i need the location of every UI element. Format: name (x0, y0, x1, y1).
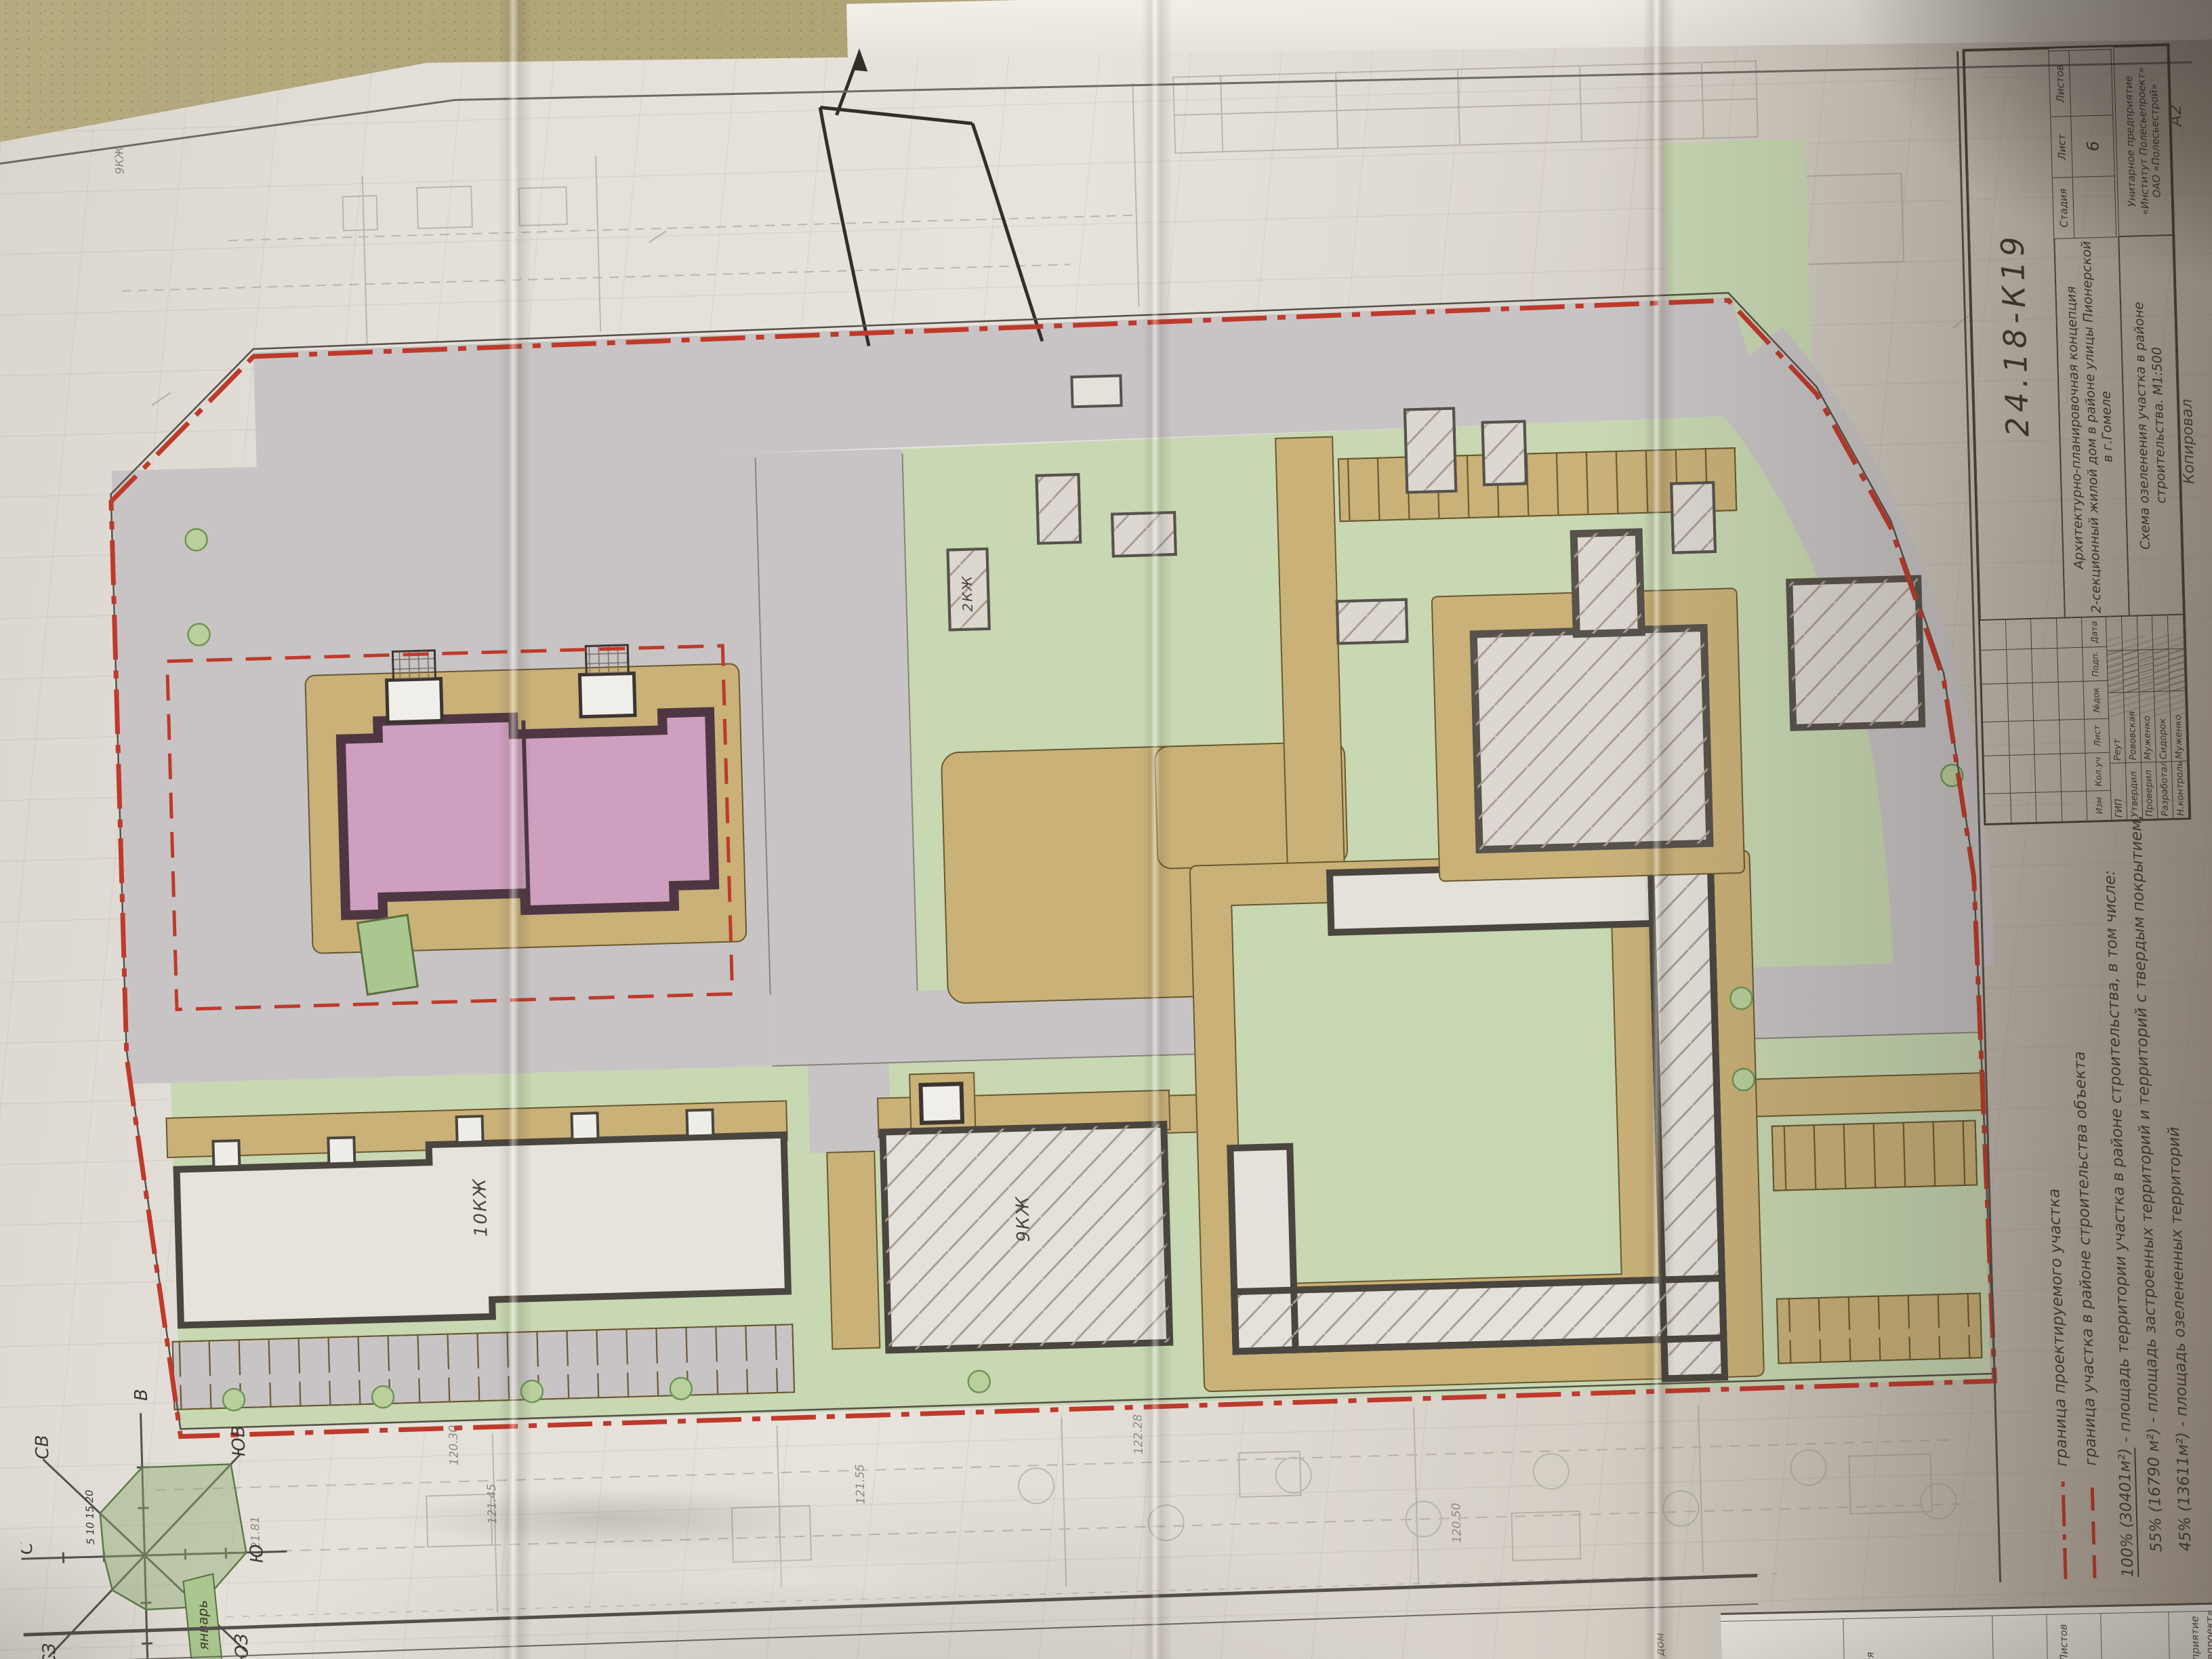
sheets-label: Листов (2049, 50, 2072, 117)
svg-text:120.30: 120.30 (447, 1425, 462, 1466)
document-number: 24.18-К19 (1964, 49, 2064, 620)
svg-text:ЮВ: ЮВ (228, 1425, 249, 1457)
sig-role: Проверил (2141, 762, 2158, 819)
svg-text:5 10 15 20: 5 10 15 20 (83, 1490, 97, 1545)
underlying-cell-text: Листов (2057, 1624, 2070, 1659)
margin-format: А2 (2165, 104, 2186, 127)
pencil-note: дом (1654, 1633, 1667, 1656)
access-road (819, 49, 1042, 348)
project-title: Архитектурно-планировочная концепция 2-с… (2054, 237, 2129, 617)
svg-text:январь: январь (194, 1600, 211, 1650)
svg-text:Ю: Ю (247, 1544, 268, 1563)
svg-text:СЗ: СЗ (39, 1643, 60, 1659)
svg-text:121.45: 121.45 (485, 1483, 500, 1524)
sig-role: ГИП (2110, 762, 2127, 820)
stage-value (2073, 176, 2116, 238)
sheet-label: Лист (2051, 116, 2073, 178)
organization-name: Унитарное предприятие «Институт Полесьеп… (2113, 45, 2173, 237)
photo-of-site-plan: 9КЖ 120.30 121.45 121.81 122.28 121.55 1… (0, 0, 2212, 1659)
svg-text:120.50: 120.50 (1450, 1502, 1465, 1543)
rev-header: Дата (2082, 617, 2107, 647)
rev-header: Изм (2087, 790, 2112, 821)
stage-label: Стадия (2053, 177, 2075, 239)
title-block: Изм Кол.уч Лист №док Подп. Дата ГИПРеут … (1962, 43, 2191, 825)
topo-tree-icons (1018, 1439, 1957, 1549)
svg-text:10КЖ: 10КЖ (470, 1177, 491, 1237)
building-right-2 (1789, 579, 1922, 728)
underlying-cell-text: епроект» (2203, 1610, 2212, 1659)
dashed-line-sample (2090, 1477, 2096, 1578)
utility-pavilion (920, 1084, 962, 1123)
drawing-sheet: 9КЖ 120.30 121.45 121.81 122.28 121.55 1… (0, 0, 2212, 1659)
sheet-value: 6 (2071, 115, 2114, 177)
stage-sheet-table: Стадия Лист Листов 6 (2049, 47, 2118, 239)
svg-text:В: В (131, 1389, 152, 1401)
underlying-cell-text: ия (1864, 1652, 1876, 1659)
sig-role: Разработал (2156, 761, 2173, 819)
master-plan-drawing: 9КЖ 120.30 121.45 121.81 122.28 121.55 1… (0, 0, 2212, 1659)
revision-table: Изм Кол.уч Лист №док Подп. Дата (1980, 617, 2112, 823)
drawing-title: Схема озеленения участка в районе строит… (2118, 235, 2184, 616)
rev-header: Кол.уч (2085, 752, 2111, 791)
svg-text:СВ: СВ (32, 1435, 53, 1460)
sig-role: Утвердил (2126, 762, 2143, 819)
rev-header: Подп. (2083, 647, 2108, 681)
svg-text:9КЖ: 9КЖ (1012, 1195, 1034, 1242)
rev-header: Лист (2085, 718, 2110, 753)
svg-text:122.28: 122.28 (1131, 1414, 1146, 1454)
sig-role: Н.контроль (2172, 761, 2189, 819)
dash-dot-line-sample (2061, 1477, 2067, 1579)
svg-text:121.55: 121.55 (853, 1464, 868, 1504)
legend: граница проектируемого участка граница у… (2033, 895, 2198, 1580)
legend-boundary-site: граница участка в районе строительства о… (2071, 1051, 2104, 1578)
svg-text:9КЖ: 9КЖ (112, 146, 127, 174)
pencil-smudge (2107, 635, 2186, 718)
underlying-cell-text: приятие (2188, 1616, 2201, 1659)
svg-text:2КЖ: 2КЖ (959, 575, 977, 612)
rev-header: №док (2084, 680, 2110, 719)
compass-rose: С СВ В ЮВ Ю ЮЗ З СЗ январь 5 10 15 20 (3, 1385, 291, 1659)
margin-copied-by: Копировал (2179, 398, 2198, 484)
sheets-value (2070, 49, 2114, 116)
